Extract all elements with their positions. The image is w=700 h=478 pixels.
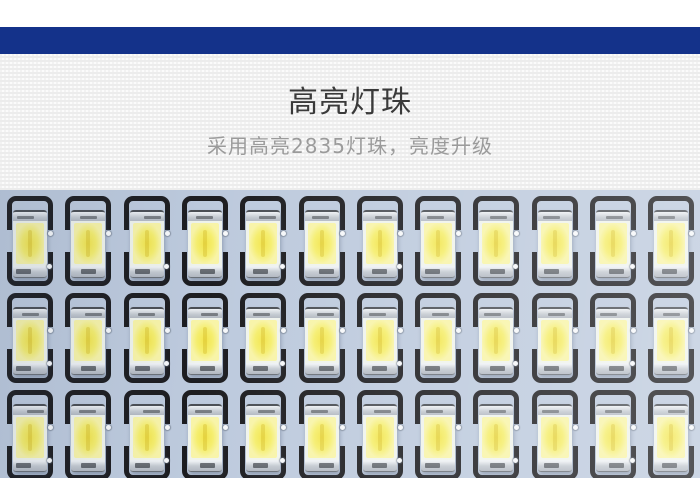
led-phosphor-window — [191, 320, 219, 361]
led-bottom-solder-pad — [130, 266, 164, 278]
solder-dot — [573, 328, 578, 333]
solder-dot — [573, 425, 578, 430]
led-frame-silkscreen — [473, 390, 519, 478]
solder-dot — [397, 458, 402, 463]
led-frame-silkscreen — [124, 293, 170, 383]
led-bottom-solder-pad — [363, 266, 397, 278]
solder-dot — [48, 231, 53, 236]
silkscreen-side-gap — [124, 327, 129, 349]
led-top-solder-pad — [130, 404, 164, 415]
silkscreen-side-gap — [415, 230, 420, 252]
led-bottom-solder-pad — [538, 363, 572, 375]
silkscreen-side-gap — [648, 327, 653, 349]
led-chip — [479, 307, 513, 375]
led-bottom-solder-pad — [654, 460, 688, 472]
led-chip — [596, 404, 630, 472]
led-frame-silkscreen — [473, 293, 519, 383]
led-top-solder-pad — [305, 404, 339, 415]
led-bottom-solder-pad — [188, 266, 222, 278]
led-top-solder-pad — [246, 404, 280, 415]
led-phosphor-window — [482, 320, 510, 361]
led-frame-silkscreen — [357, 390, 403, 478]
led-phosphor-window — [366, 417, 394, 458]
silkscreen-side-gap — [65, 424, 70, 446]
led-bottom-solder-pad — [479, 460, 513, 472]
led-top-solder-pad — [13, 307, 47, 318]
led-top-solder-pad — [130, 210, 164, 221]
led-top-solder-pad — [246, 307, 280, 318]
led-phosphor-window — [482, 223, 510, 264]
led-top-solder-pad — [363, 404, 397, 415]
led-top-solder-pad — [246, 210, 280, 221]
led-chip — [71, 307, 105, 375]
led-frame-silkscreen — [648, 390, 694, 478]
led-top-solder-pad — [305, 210, 339, 221]
led-top-solder-pad — [13, 404, 47, 415]
led-frame-silkscreen — [124, 196, 170, 286]
solder-dot — [164, 264, 169, 269]
silkscreen-side-gap — [65, 230, 70, 252]
led-phosphor-window — [657, 320, 685, 361]
led-frame-silkscreen — [473, 196, 519, 286]
led-phosphor-window — [249, 223, 277, 264]
solder-dot — [631, 231, 636, 236]
silkscreen-side-gap — [299, 230, 304, 252]
led-chip — [479, 404, 513, 472]
led-bottom-solder-pad — [421, 363, 455, 375]
led-frame-silkscreen — [648, 196, 694, 286]
silkscreen-side-gap — [590, 424, 595, 446]
led-frame-silkscreen — [590, 390, 636, 478]
led-chip — [130, 404, 164, 472]
solder-dot — [280, 264, 285, 269]
solder-dot — [513, 264, 518, 269]
section-divider-bar — [0, 27, 700, 54]
led-chip — [538, 210, 572, 278]
led-panel-photo — [0, 190, 700, 478]
led-top-solder-pad — [188, 307, 222, 318]
led-frame-silkscreen — [299, 390, 345, 478]
led-phosphor-window — [657, 417, 685, 458]
led-bottom-solder-pad — [596, 460, 630, 472]
led-bottom-solder-pad — [479, 266, 513, 278]
solder-dot — [513, 361, 518, 366]
silkscreen-side-gap — [182, 327, 187, 349]
led-top-solder-pad — [188, 210, 222, 221]
solder-dot — [573, 231, 578, 236]
led-top-solder-pad — [71, 307, 105, 318]
silkscreen-side-gap — [357, 230, 362, 252]
silkscreen-side-gap — [7, 424, 12, 446]
silkscreen-side-gap — [7, 230, 12, 252]
led-frame-silkscreen — [182, 390, 228, 478]
silkscreen-side-gap — [590, 327, 595, 349]
led-chip — [130, 307, 164, 375]
solder-dot — [47, 458, 52, 463]
led-phosphor-window — [249, 417, 277, 458]
silkscreen-side-gap — [357, 327, 362, 349]
solder-dot — [630, 458, 635, 463]
led-bottom-solder-pad — [596, 363, 630, 375]
led-frame-silkscreen — [7, 196, 53, 286]
led-frame-silkscreen — [65, 293, 111, 383]
led-top-solder-pad — [13, 210, 47, 221]
solder-dot — [280, 458, 285, 463]
silkscreen-side-gap — [240, 327, 245, 349]
led-top-solder-pad — [596, 404, 630, 415]
solder-dot — [630, 361, 635, 366]
led-phosphor-window — [599, 417, 627, 458]
solder-dot — [631, 425, 636, 430]
led-frame-silkscreen — [65, 390, 111, 478]
led-bottom-solder-pad — [188, 363, 222, 375]
led-phosphor-window — [657, 223, 685, 264]
silkscreen-side-gap — [648, 230, 653, 252]
led-frame-silkscreen — [648, 293, 694, 383]
led-top-solder-pad — [363, 307, 397, 318]
led-phosphor-window — [191, 223, 219, 264]
led-top-solder-pad — [479, 210, 513, 221]
led-bottom-solder-pad — [363, 363, 397, 375]
solder-dot — [48, 328, 53, 333]
led-top-solder-pad — [421, 210, 455, 221]
led-bottom-solder-pad — [305, 266, 339, 278]
led-chip — [363, 307, 397, 375]
led-frame-silkscreen — [7, 293, 53, 383]
led-phosphor-window — [308, 417, 336, 458]
led-phosphor-window — [74, 417, 102, 458]
solder-dot — [398, 328, 403, 333]
led-bottom-solder-pad — [246, 363, 280, 375]
led-frame-silkscreen — [65, 196, 111, 286]
silkscreen-side-gap — [532, 327, 537, 349]
led-bottom-solder-pad — [13, 363, 47, 375]
silkscreen-side-gap — [415, 424, 420, 446]
led-bottom-solder-pad — [71, 266, 105, 278]
led-top-solder-pad — [596, 210, 630, 221]
solder-dot — [165, 425, 170, 430]
silkscreen-side-gap — [182, 424, 187, 446]
led-chip — [363, 404, 397, 472]
led-chip — [421, 404, 455, 472]
led-bottom-solder-pad — [71, 460, 105, 472]
led-bottom-solder-pad — [538, 460, 572, 472]
solder-dot — [398, 425, 403, 430]
led-frame-silkscreen — [7, 390, 53, 478]
led-frame-silkscreen — [415, 196, 461, 286]
led-top-solder-pad — [305, 307, 339, 318]
led-top-solder-pad — [538, 210, 572, 221]
led-bottom-solder-pad — [479, 363, 513, 375]
led-chip — [421, 307, 455, 375]
led-phosphor-window — [16, 223, 44, 264]
led-bottom-solder-pad — [13, 460, 47, 472]
led-bottom-solder-pad — [654, 266, 688, 278]
led-chip — [71, 404, 105, 472]
silkscreen-side-gap — [65, 327, 70, 349]
solder-dot — [340, 231, 345, 236]
solder-dot — [48, 425, 53, 430]
led-phosphor-window — [16, 320, 44, 361]
solder-dot — [223, 231, 228, 236]
led-phosphor-window — [541, 320, 569, 361]
led-phosphor-window — [599, 223, 627, 264]
feature-text-panel: 高亮灯珠 采用高亮2835灯珠，亮度升级 — [0, 54, 700, 190]
led-bottom-solder-pad — [246, 460, 280, 472]
solder-dot — [47, 264, 52, 269]
led-chip — [246, 210, 280, 278]
led-phosphor-window — [74, 223, 102, 264]
led-bottom-solder-pad — [596, 266, 630, 278]
led-frame-silkscreen — [240, 293, 286, 383]
solder-dot — [513, 458, 518, 463]
led-phosphor-window — [541, 223, 569, 264]
led-top-solder-pad — [654, 404, 688, 415]
led-top-solder-pad — [71, 404, 105, 415]
led-bottom-solder-pad — [130, 460, 164, 472]
led-frame-silkscreen — [124, 390, 170, 478]
led-top-solder-pad — [421, 404, 455, 415]
silkscreen-side-gap — [240, 424, 245, 446]
led-phosphor-window — [74, 320, 102, 361]
solder-dot — [280, 361, 285, 366]
led-phosphor-window — [191, 417, 219, 458]
led-bottom-solder-pad — [305, 460, 339, 472]
led-top-solder-pad — [479, 404, 513, 415]
led-bottom-solder-pad — [421, 460, 455, 472]
led-top-solder-pad — [538, 404, 572, 415]
led-top-solder-pad — [654, 210, 688, 221]
led-phosphor-window — [424, 223, 452, 264]
led-bottom-solder-pad — [538, 266, 572, 278]
silkscreen-side-gap — [124, 424, 129, 446]
solder-dot — [397, 264, 402, 269]
solder-dot — [47, 361, 52, 366]
silkscreen-side-gap — [357, 424, 362, 446]
solder-dot — [630, 264, 635, 269]
solder-dot — [340, 425, 345, 430]
led-phosphor-window — [308, 223, 336, 264]
led-chip — [130, 210, 164, 278]
led-frame-silkscreen — [182, 293, 228, 383]
led-chip — [654, 404, 688, 472]
led-phosphor-window — [308, 320, 336, 361]
led-frame-silkscreen — [299, 196, 345, 286]
top-white-strip — [0, 0, 700, 27]
led-chip — [188, 307, 222, 375]
led-chip — [479, 210, 513, 278]
silkscreen-side-gap — [473, 230, 478, 252]
silkscreen-side-gap — [415, 327, 420, 349]
led-chip — [421, 210, 455, 278]
led-top-solder-pad — [479, 307, 513, 318]
silkscreen-side-gap — [299, 424, 304, 446]
silkscreen-side-gap — [7, 327, 12, 349]
led-phosphor-window — [133, 223, 161, 264]
solder-dot — [223, 425, 228, 430]
led-top-solder-pad — [538, 307, 572, 318]
solder-dot — [164, 361, 169, 366]
led-phosphor-window — [366, 223, 394, 264]
led-phosphor-window — [599, 320, 627, 361]
led-chip — [71, 210, 105, 278]
led-phosphor-window — [541, 417, 569, 458]
led-frame-silkscreen — [532, 293, 578, 383]
solder-dot — [631, 328, 636, 333]
led-bottom-solder-pad — [188, 460, 222, 472]
led-chip — [13, 307, 47, 375]
led-top-solder-pad — [188, 404, 222, 415]
led-phosphor-window — [424, 417, 452, 458]
led-top-solder-pad — [71, 210, 105, 221]
led-phosphor-window — [249, 320, 277, 361]
led-bottom-solder-pad — [421, 266, 455, 278]
led-top-solder-pad — [596, 307, 630, 318]
led-frame-silkscreen — [299, 293, 345, 383]
silkscreen-side-gap — [473, 424, 478, 446]
led-frame-silkscreen — [532, 390, 578, 478]
led-chip — [13, 404, 47, 472]
silkscreen-side-gap — [240, 230, 245, 252]
led-bottom-solder-pad — [363, 460, 397, 472]
led-frame-silkscreen — [240, 196, 286, 286]
led-phosphor-window — [424, 320, 452, 361]
led-frame-silkscreen — [240, 390, 286, 478]
led-frame-silkscreen — [357, 196, 403, 286]
silkscreen-side-gap — [124, 230, 129, 252]
solder-dot — [165, 231, 170, 236]
feature-title: 高亮灯珠 — [0, 87, 700, 119]
led-chip — [246, 307, 280, 375]
led-chip — [363, 210, 397, 278]
silkscreen-side-gap — [648, 424, 653, 446]
silkscreen-side-gap — [299, 327, 304, 349]
led-chip — [596, 210, 630, 278]
led-frame-silkscreen — [590, 196, 636, 286]
led-chip — [188, 210, 222, 278]
led-phosphor-window — [482, 417, 510, 458]
silkscreen-side-gap — [532, 230, 537, 252]
silkscreen-side-gap — [473, 327, 478, 349]
led-phosphor-window — [133, 417, 161, 458]
solder-dot — [164, 458, 169, 463]
product-detail-section: 高亮灯珠 采用高亮2835灯珠，亮度升级 — [0, 0, 700, 478]
led-phosphor-window — [16, 417, 44, 458]
led-frame-silkscreen — [415, 293, 461, 383]
led-bottom-solder-pad — [654, 363, 688, 375]
led-chip — [13, 210, 47, 278]
led-chip — [654, 307, 688, 375]
led-chip — [305, 404, 339, 472]
led-chip — [246, 404, 280, 472]
led-bottom-solder-pad — [13, 266, 47, 278]
led-chip — [654, 210, 688, 278]
solder-dot — [340, 328, 345, 333]
led-top-solder-pad — [130, 307, 164, 318]
led-bottom-solder-pad — [305, 363, 339, 375]
led-frame-silkscreen — [182, 196, 228, 286]
silkscreen-side-gap — [182, 230, 187, 252]
led-phosphor-window — [133, 320, 161, 361]
led-phosphor-window — [366, 320, 394, 361]
feature-subtitle: 采用高亮2835灯珠，亮度升级 — [0, 136, 700, 157]
led-chip — [305, 307, 339, 375]
led-frame-silkscreen — [415, 390, 461, 478]
led-chip — [188, 404, 222, 472]
led-chip — [596, 307, 630, 375]
silkscreen-side-gap — [532, 424, 537, 446]
led-frame-silkscreen — [532, 196, 578, 286]
solder-dot — [397, 361, 402, 366]
led-top-solder-pad — [421, 307, 455, 318]
led-top-solder-pad — [654, 307, 688, 318]
led-frame-silkscreen — [357, 293, 403, 383]
led-chip — [538, 404, 572, 472]
led-bottom-solder-pad — [246, 266, 280, 278]
led-chip — [305, 210, 339, 278]
solder-dot — [223, 328, 228, 333]
led-bottom-solder-pad — [71, 363, 105, 375]
led-top-solder-pad — [363, 210, 397, 221]
led-bottom-solder-pad — [130, 363, 164, 375]
solder-dot — [165, 328, 170, 333]
led-chip — [538, 307, 572, 375]
solder-dot — [398, 231, 403, 236]
silkscreen-side-gap — [590, 230, 595, 252]
led-frame-silkscreen — [590, 293, 636, 383]
